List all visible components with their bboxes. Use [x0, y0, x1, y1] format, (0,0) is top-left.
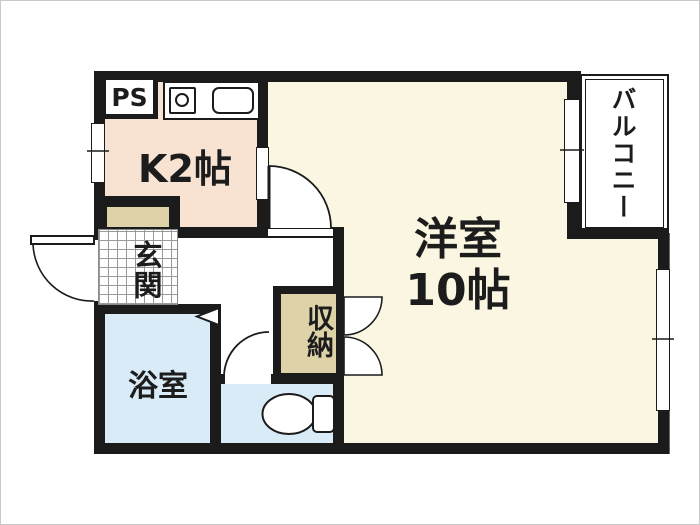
entrance-door-swing-arc — [33, 244, 94, 301]
storage-label: 収納 — [298, 304, 337, 380]
toilet-tank-icon — [313, 396, 334, 432]
western-room-door-swing-area — [269, 166, 331, 228]
western-room-name: 洋室 — [353, 214, 563, 265]
floorplan-canvas: PS K2帖 玄関 浴室 収納 洋室 10帖 バルコニー — [0, 0, 700, 525]
doors-and-symbols-layer — [1, 1, 700, 525]
toilet-icon — [263, 394, 316, 434]
western-room-label: 洋室 10帖 — [353, 214, 563, 316]
entrance-label: 玄関 — [125, 240, 167, 360]
entrance-door-panel — [31, 236, 94, 244]
western-room-size: 10帖 — [353, 265, 563, 316]
closet-door-lower — [344, 337, 382, 375]
bathroom-label: 浴室 — [105, 361, 211, 405]
toilet-door-swing-arc — [224, 332, 269, 377]
balcony-label: バルコニー — [604, 86, 640, 228]
folding-door-triangle-icon — [197, 308, 219, 325]
kitchen-label: K2帖 — [109, 138, 261, 193]
